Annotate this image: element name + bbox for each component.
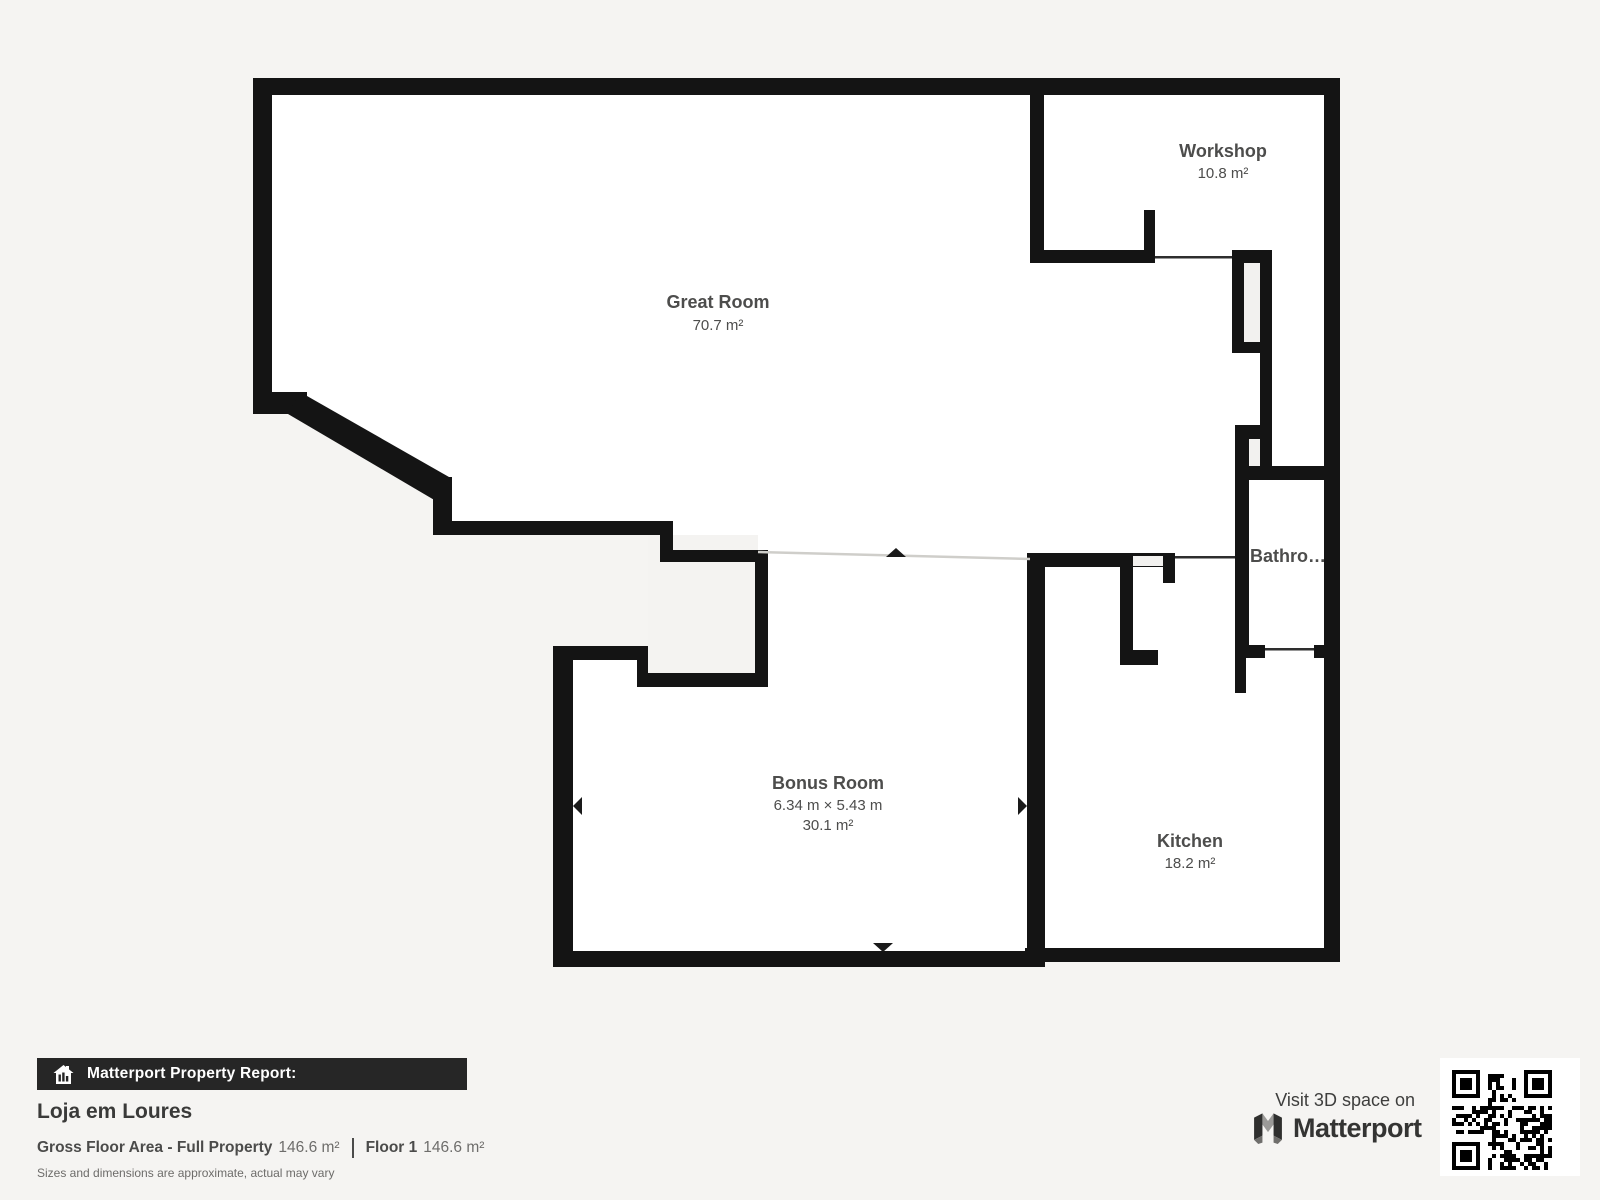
qr-code: [1452, 1070, 1552, 1170]
floor-value: 146.6 m²: [423, 1139, 484, 1157]
report-header-bar: Matterport Property Report:: [37, 1058, 467, 1090]
floor-footprint: [253, 78, 1340, 962]
house-chart-icon: [53, 1065, 74, 1084]
matterport-m-icon: [1251, 1112, 1285, 1144]
room-label-kitchen: Kitchen: [1157, 831, 1223, 851]
property-name: Loja em Loures: [37, 1100, 192, 1124]
room-label-bathroom: Bathro…: [1250, 546, 1326, 566]
room-label-great-room: Great Room: [666, 292, 769, 312]
divider: [352, 1138, 354, 1158]
room-area-kitchen: 18.2 m²: [1165, 855, 1216, 872]
room-label-workshop: Workshop: [1179, 141, 1267, 161]
qr-code-panel: [1440, 1058, 1580, 1176]
gross-floor-area-value: 146.6 m²: [278, 1139, 339, 1157]
gross-floor-area-label: Gross Floor Area - Full Property: [37, 1139, 272, 1157]
matterport-logo: Matterport: [1251, 1112, 1422, 1144]
room-area-great-room: 70.7 m²: [693, 317, 744, 334]
floor-label: Floor 1: [366, 1139, 418, 1157]
area-summary: Gross Floor Area - Full Property 146.6 m…: [37, 1138, 484, 1158]
room-label-bonus-room: Bonus Room: [772, 773, 884, 793]
disclaimer-text: Sizes and dimensions are approximate, ac…: [37, 1166, 334, 1180]
floor-plan: Great Room 70.7 m² Workshop 10.8 m² Bath…: [0, 0, 1600, 1030]
room-area-bonus-room: 30.1 m²: [803, 817, 854, 834]
visit-3d-space-label: Visit 3D space on: [1015, 1090, 1415, 1111]
report-bar-label: Matterport Property Report:: [87, 1065, 297, 1083]
room-dims-bonus-room: 6.34 m × 5.43 m: [774, 797, 883, 814]
matterport-wordmark: Matterport: [1293, 1113, 1422, 1144]
room-area-workshop: 10.8 m²: [1198, 165, 1249, 182]
